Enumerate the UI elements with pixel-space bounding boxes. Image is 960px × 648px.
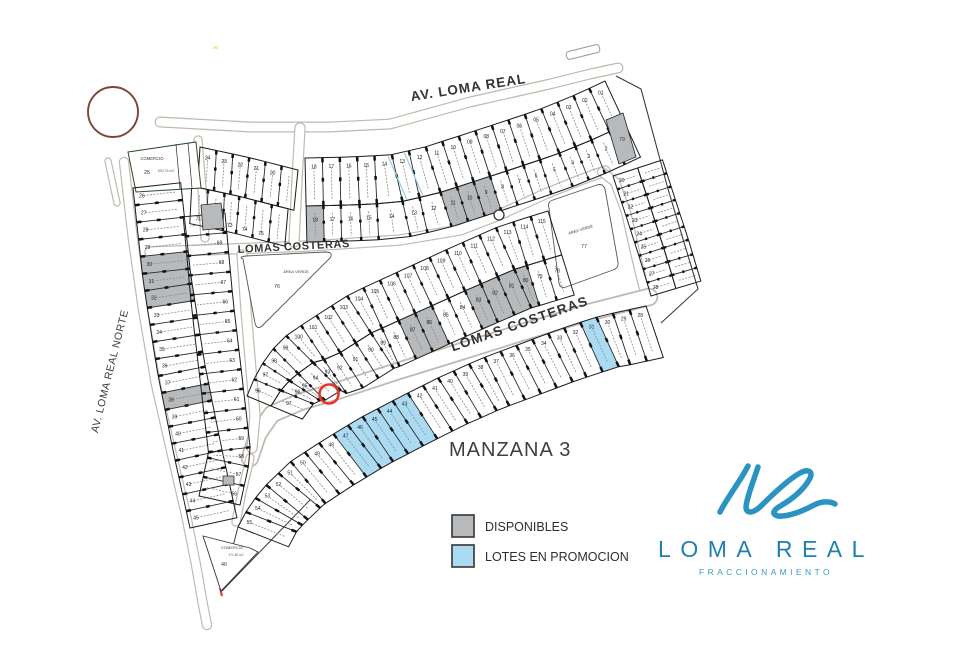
svg-text:42: 42 xyxy=(182,465,188,471)
svg-text:95: 95 xyxy=(302,384,308,390)
svg-text:75: 75 xyxy=(258,231,264,237)
svg-text:11: 11 xyxy=(434,150,439,156)
svg-text:51: 51 xyxy=(287,471,293,477)
svg-text:08: 08 xyxy=(484,134,490,140)
svg-text:4: 4 xyxy=(571,161,574,167)
svg-text:115: 115 xyxy=(538,219,546,225)
svg-text:17: 17 xyxy=(329,164,335,170)
svg-text:02: 02 xyxy=(582,98,588,104)
svg-text:39: 39 xyxy=(463,372,469,378)
svg-text:37: 37 xyxy=(493,359,499,365)
svg-text:67: 67 xyxy=(221,280,227,286)
svg-text:16: 16 xyxy=(346,164,352,170)
svg-text:61: 61 xyxy=(234,397,240,403)
svg-text:88: 88 xyxy=(393,335,399,341)
svg-text:44: 44 xyxy=(190,499,196,505)
svg-text:33: 33 xyxy=(154,313,160,319)
svg-text:74: 74 xyxy=(242,227,248,233)
svg-text:42: 42 xyxy=(417,394,423,400)
svg-text:66: 66 xyxy=(223,299,229,305)
svg-text:111: 111 xyxy=(470,244,478,250)
svg-text:113: 113 xyxy=(504,230,512,236)
svg-text:84: 84 xyxy=(460,305,466,311)
svg-text:41: 41 xyxy=(179,448,185,454)
svg-text:96: 96 xyxy=(295,390,301,396)
svg-text:530.75 m2: 530.75 m2 xyxy=(158,169,175,173)
svg-text:31: 31 xyxy=(149,279,155,285)
svg-text:59: 59 xyxy=(238,436,244,442)
svg-text:21: 21 xyxy=(623,191,629,197)
svg-text:102: 102 xyxy=(324,315,333,321)
svg-text:92: 92 xyxy=(337,365,343,371)
svg-text:53: 53 xyxy=(265,494,271,500)
svg-text:64: 64 xyxy=(227,339,233,345)
svg-text:27: 27 xyxy=(649,272,655,278)
svg-text:10: 10 xyxy=(467,195,473,201)
svg-text:471.86 m2: 471.86 m2 xyxy=(228,553,243,557)
svg-text:79: 79 xyxy=(537,274,543,280)
svg-text:99: 99 xyxy=(283,346,289,352)
svg-text:77: 77 xyxy=(581,244,587,250)
svg-text:34: 34 xyxy=(541,341,547,347)
svg-text:12: 12 xyxy=(431,206,437,212)
svg-text:46: 46 xyxy=(357,425,363,431)
svg-text:18: 18 xyxy=(311,164,317,170)
svg-text:15: 15 xyxy=(366,216,372,222)
svg-text:98: 98 xyxy=(271,359,277,365)
svg-text:35: 35 xyxy=(159,347,165,353)
svg-text:83: 83 xyxy=(476,298,482,304)
svg-text:94: 94 xyxy=(313,376,319,382)
svg-text:36: 36 xyxy=(162,364,168,370)
svg-text:81: 81 xyxy=(509,284,515,290)
svg-text:20: 20 xyxy=(619,178,625,184)
svg-text:38: 38 xyxy=(168,397,174,403)
svg-text:73: 73 xyxy=(227,223,233,229)
svg-text:07: 07 xyxy=(500,129,506,135)
svg-text:89: 89 xyxy=(380,341,386,347)
svg-text:93: 93 xyxy=(325,370,331,376)
svg-text:15: 15 xyxy=(364,163,370,169)
svg-text:17: 17 xyxy=(330,217,336,223)
svg-text:28: 28 xyxy=(653,285,659,291)
svg-text:DISPONIBLES: DISPONIBLES xyxy=(485,520,568,534)
svg-text:32: 32 xyxy=(151,296,157,302)
svg-text:20: 20 xyxy=(270,170,276,176)
svg-text:62: 62 xyxy=(232,378,238,384)
svg-text:68: 68 xyxy=(219,260,225,266)
svg-text:87: 87 xyxy=(410,327,416,333)
svg-text:FRACCIONAMIENTO: FRACCIONAMIENTO xyxy=(699,567,833,577)
svg-text:27: 27 xyxy=(141,211,147,217)
svg-text:25: 25 xyxy=(641,245,647,251)
svg-text:5: 5 xyxy=(553,167,556,173)
svg-text:80: 80 xyxy=(523,278,529,284)
svg-text:105: 105 xyxy=(371,289,380,295)
svg-text:97: 97 xyxy=(286,401,292,407)
svg-text:03: 03 xyxy=(566,105,572,111)
svg-text:25: 25 xyxy=(144,170,150,176)
svg-text:57: 57 xyxy=(236,472,242,478)
svg-text:22: 22 xyxy=(238,162,244,168)
svg-text:24: 24 xyxy=(205,155,211,161)
svg-text:32: 32 xyxy=(573,330,579,336)
svg-text:05: 05 xyxy=(533,118,539,124)
svg-text:103: 103 xyxy=(340,305,349,311)
svg-text:33: 33 xyxy=(557,335,563,341)
svg-text:COMERCIO: COMERCIO xyxy=(221,545,243,550)
svg-text:12: 12 xyxy=(417,155,423,161)
svg-text:38: 38 xyxy=(478,365,484,371)
svg-text:63: 63 xyxy=(229,358,235,364)
svg-text:44: 44 xyxy=(387,409,393,415)
svg-text:56: 56 xyxy=(232,491,238,497)
svg-text:LOMA REAL: LOMA REAL xyxy=(658,536,874,562)
svg-text:13: 13 xyxy=(411,211,417,217)
svg-text:29: 29 xyxy=(145,245,151,251)
svg-text:58: 58 xyxy=(239,454,245,460)
svg-text:34: 34 xyxy=(156,330,162,336)
svg-text:26: 26 xyxy=(139,193,145,199)
svg-text:104: 104 xyxy=(355,297,364,303)
svg-text:65: 65 xyxy=(225,319,231,325)
svg-text:109: 109 xyxy=(437,259,446,265)
svg-text:79: 79 xyxy=(619,137,625,143)
svg-text:96: 96 xyxy=(255,388,261,394)
svg-text:114: 114 xyxy=(520,224,528,230)
svg-text:43: 43 xyxy=(402,401,408,407)
svg-text:30: 30 xyxy=(605,320,611,326)
svg-text:110: 110 xyxy=(454,251,462,257)
svg-text:16: 16 xyxy=(348,217,354,223)
svg-text:28: 28 xyxy=(638,313,644,319)
svg-text:100: 100 xyxy=(295,334,304,340)
svg-text:26: 26 xyxy=(645,258,651,264)
svg-text:112: 112 xyxy=(487,236,495,242)
svg-text:7: 7 xyxy=(518,179,521,185)
svg-text:49: 49 xyxy=(314,451,320,457)
svg-text:COMERCIO: COMERCIO xyxy=(140,156,164,161)
svg-text:91: 91 xyxy=(353,357,359,363)
svg-text:3: 3 xyxy=(587,154,590,160)
svg-text:43: 43 xyxy=(186,482,192,488)
svg-text:13: 13 xyxy=(400,159,406,165)
svg-text:6: 6 xyxy=(535,174,538,180)
svg-text:101: 101 xyxy=(309,325,318,331)
svg-text:24: 24 xyxy=(636,231,642,237)
svg-text:14: 14 xyxy=(382,162,388,168)
svg-text:30: 30 xyxy=(147,262,153,268)
svg-text:36: 36 xyxy=(509,353,515,359)
svg-text:107: 107 xyxy=(404,274,413,280)
svg-text:54: 54 xyxy=(255,506,261,512)
svg-text:52: 52 xyxy=(276,482,282,488)
svg-text:22: 22 xyxy=(628,205,634,211)
svg-text:37: 37 xyxy=(165,381,171,387)
svg-text:55: 55 xyxy=(247,520,253,526)
svg-text:76: 76 xyxy=(274,284,280,290)
svg-text:82: 82 xyxy=(492,291,498,297)
svg-text:108: 108 xyxy=(420,266,429,272)
svg-text:41: 41 xyxy=(432,386,438,392)
svg-text:106: 106 xyxy=(387,281,396,287)
svg-text:01: 01 xyxy=(598,90,604,96)
svg-text:LOTES EN PROMOCION: LOTES EN PROMOCION xyxy=(485,550,629,564)
svg-text:86: 86 xyxy=(427,320,433,326)
svg-text:18: 18 xyxy=(312,217,318,223)
svg-text:45: 45 xyxy=(372,417,378,423)
svg-text:9: 9 xyxy=(485,190,488,196)
svg-text:06: 06 xyxy=(517,123,523,129)
svg-text:69: 69 xyxy=(217,241,223,247)
svg-text:09: 09 xyxy=(467,140,473,146)
svg-text:46: 46 xyxy=(221,562,227,568)
svg-text:50: 50 xyxy=(300,461,306,467)
svg-text:21: 21 xyxy=(254,166,260,172)
svg-text:04: 04 xyxy=(550,111,556,117)
svg-text:40: 40 xyxy=(175,431,181,437)
svg-text:48: 48 xyxy=(329,442,335,448)
svg-text:97: 97 xyxy=(263,373,269,379)
svg-text:71: 71 xyxy=(196,216,202,222)
svg-text:AREA VERDE: AREA VERDE xyxy=(283,269,309,274)
svg-text:8: 8 xyxy=(501,185,504,191)
svg-text:23: 23 xyxy=(221,159,227,165)
svg-text:40: 40 xyxy=(447,379,453,385)
svg-text:29: 29 xyxy=(621,317,627,323)
svg-text:60: 60 xyxy=(236,417,242,423)
svg-text:85: 85 xyxy=(443,312,449,318)
svg-text:MANZANA 3: MANZANA 3 xyxy=(449,439,571,461)
svg-text:78: 78 xyxy=(554,269,560,275)
svg-text:2: 2 xyxy=(605,146,608,152)
svg-text:47: 47 xyxy=(343,434,349,440)
svg-text:14: 14 xyxy=(389,214,395,220)
svg-text:10: 10 xyxy=(451,145,457,151)
svg-text:90: 90 xyxy=(368,347,374,353)
svg-text:28: 28 xyxy=(143,228,149,234)
svg-text:45: 45 xyxy=(193,516,199,522)
svg-text:31: 31 xyxy=(589,325,595,331)
svg-text:11: 11 xyxy=(450,201,455,207)
svg-text:35: 35 xyxy=(525,347,531,353)
svg-text:39: 39 xyxy=(172,414,178,420)
svg-text:23: 23 xyxy=(632,218,638,224)
